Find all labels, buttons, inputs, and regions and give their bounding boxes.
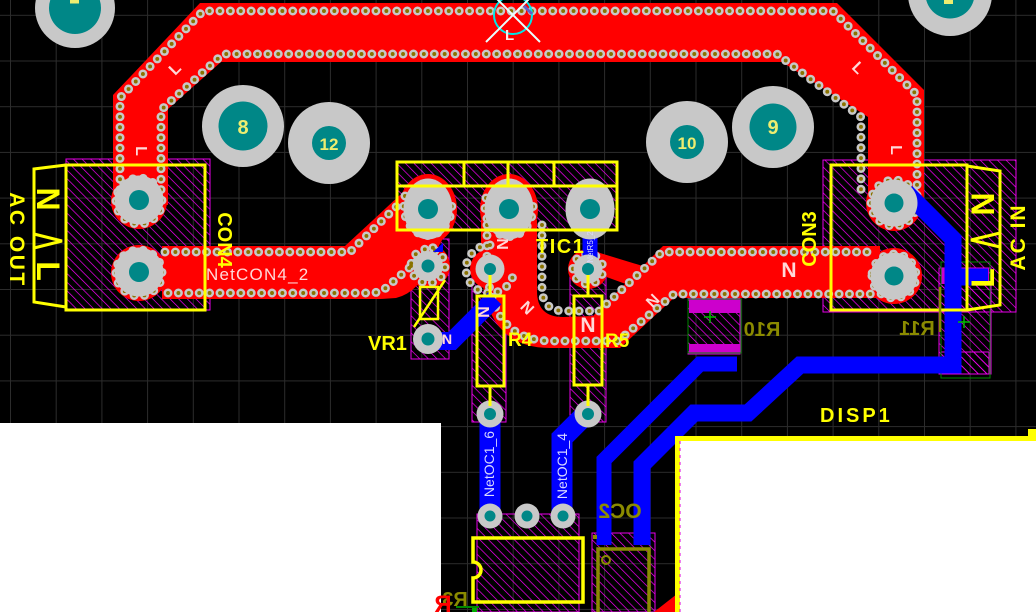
svg-text:10: 10 <box>678 134 697 153</box>
svg-text:NetOC1_6: NetOC1_6 <box>481 431 497 497</box>
svg-text:L: L <box>887 145 904 155</box>
svg-text:AC OUT: AC OUT <box>5 192 28 288</box>
svg-text:CON4: CON4 <box>213 212 235 268</box>
svg-text:CON3: CON3 <box>799 211 821 267</box>
svg-text:R10: R10 <box>744 319 781 341</box>
svg-text:R4: R4 <box>508 330 533 351</box>
svg-text:L: L <box>965 268 1001 288</box>
svg-text:R5: R5 <box>605 331 630 352</box>
svg-text:N: N <box>580 314 595 337</box>
svg-text:8: 8 <box>237 117 248 139</box>
svg-text:N: N <box>442 331 452 347</box>
svg-text:9: 9 <box>767 117 778 139</box>
svg-text:AC IN: AC IN <box>1007 203 1030 270</box>
svg-text:NetOC1_4: NetOC1_4 <box>554 433 570 499</box>
svg-text:N: N <box>493 238 510 250</box>
svg-text:L: L <box>505 27 514 44</box>
svg-text:NetR5_2: NetR5_2 <box>586 231 595 263</box>
svg-text:TIC1: TIC1 <box>536 236 585 258</box>
svg-text:L: L <box>132 146 149 156</box>
svg-text:VR1: VR1 <box>368 333 407 355</box>
svg-text:OC2: OC2 <box>598 500 641 523</box>
svg-text:NetCON4_2: NetCON4_2 <box>206 265 309 284</box>
svg-text:N: N <box>30 187 66 210</box>
svg-text:N: N <box>781 259 796 282</box>
svg-text:DISP1: DISP1 <box>820 405 893 427</box>
svg-text:12: 12 <box>320 135 339 154</box>
svg-text:N: N <box>965 192 1001 215</box>
svg-text:R11: R11 <box>899 318 935 340</box>
svg-text:L: L <box>30 261 66 281</box>
svg-text:N: N <box>474 306 491 318</box>
svg-text:R: R <box>434 591 451 612</box>
